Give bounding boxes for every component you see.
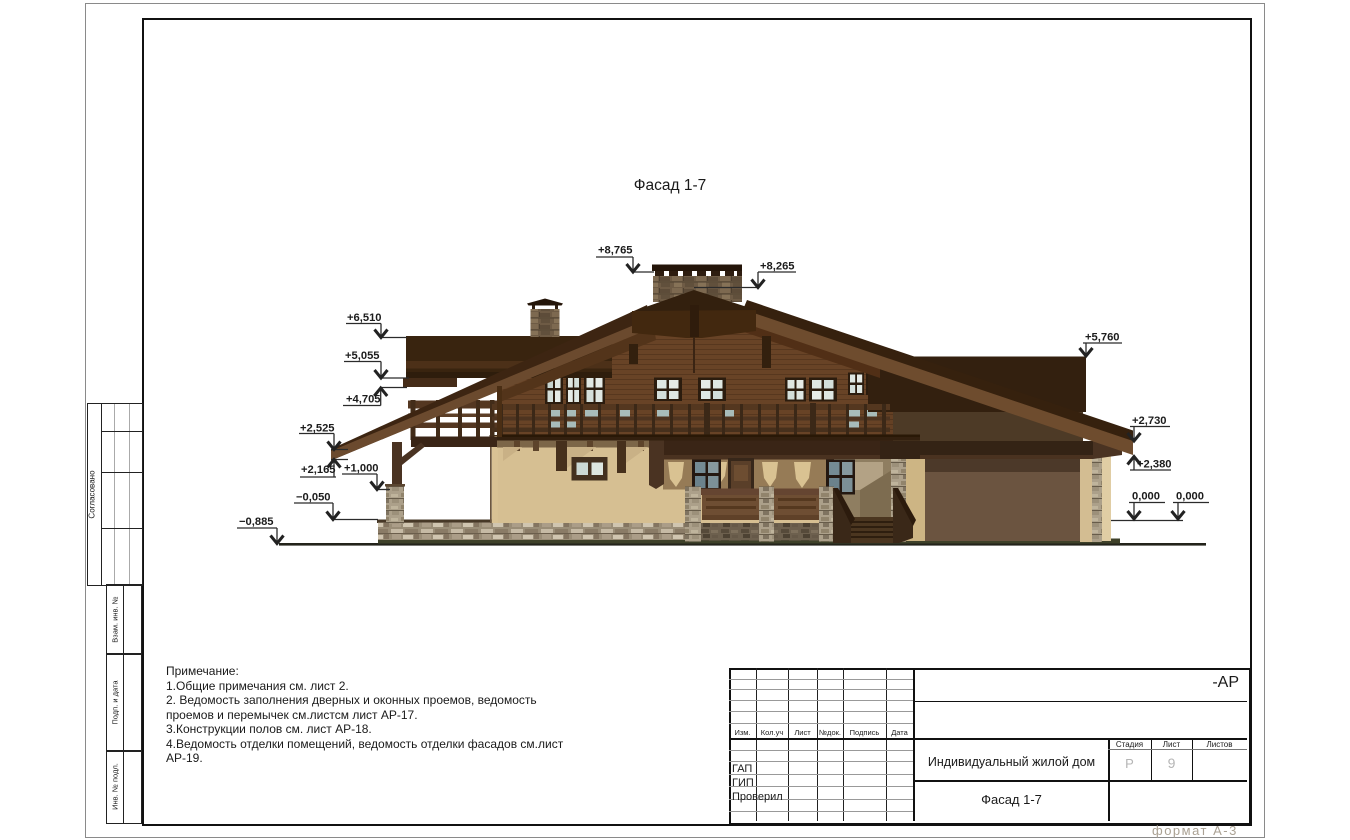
svg-text:0,000: 0,000: [1132, 491, 1160, 503]
svg-text:+6,510: +6,510: [347, 312, 382, 324]
svg-text:+2,525: +2,525: [300, 423, 335, 435]
svg-text:+8,765: +8,765: [598, 245, 633, 257]
svg-text:+1,000: +1,000: [344, 463, 379, 475]
svg-text:+8,265: +8,265: [760, 261, 795, 273]
svg-text:0,000: 0,000: [1176, 491, 1204, 503]
svg-text:+4,705: +4,705: [346, 394, 381, 406]
svg-text:−0,050: −0,050: [296, 492, 331, 504]
svg-text:+5,055: +5,055: [345, 350, 380, 362]
svg-text:+2,730: +2,730: [1132, 415, 1167, 427]
svg-text:+5,760: +5,760: [1085, 332, 1120, 344]
svg-text:−0,885: −0,885: [239, 516, 274, 528]
svg-text:+2,380: +2,380: [1137, 459, 1172, 471]
svg-text:+2,165: +2,165: [301, 464, 336, 476]
